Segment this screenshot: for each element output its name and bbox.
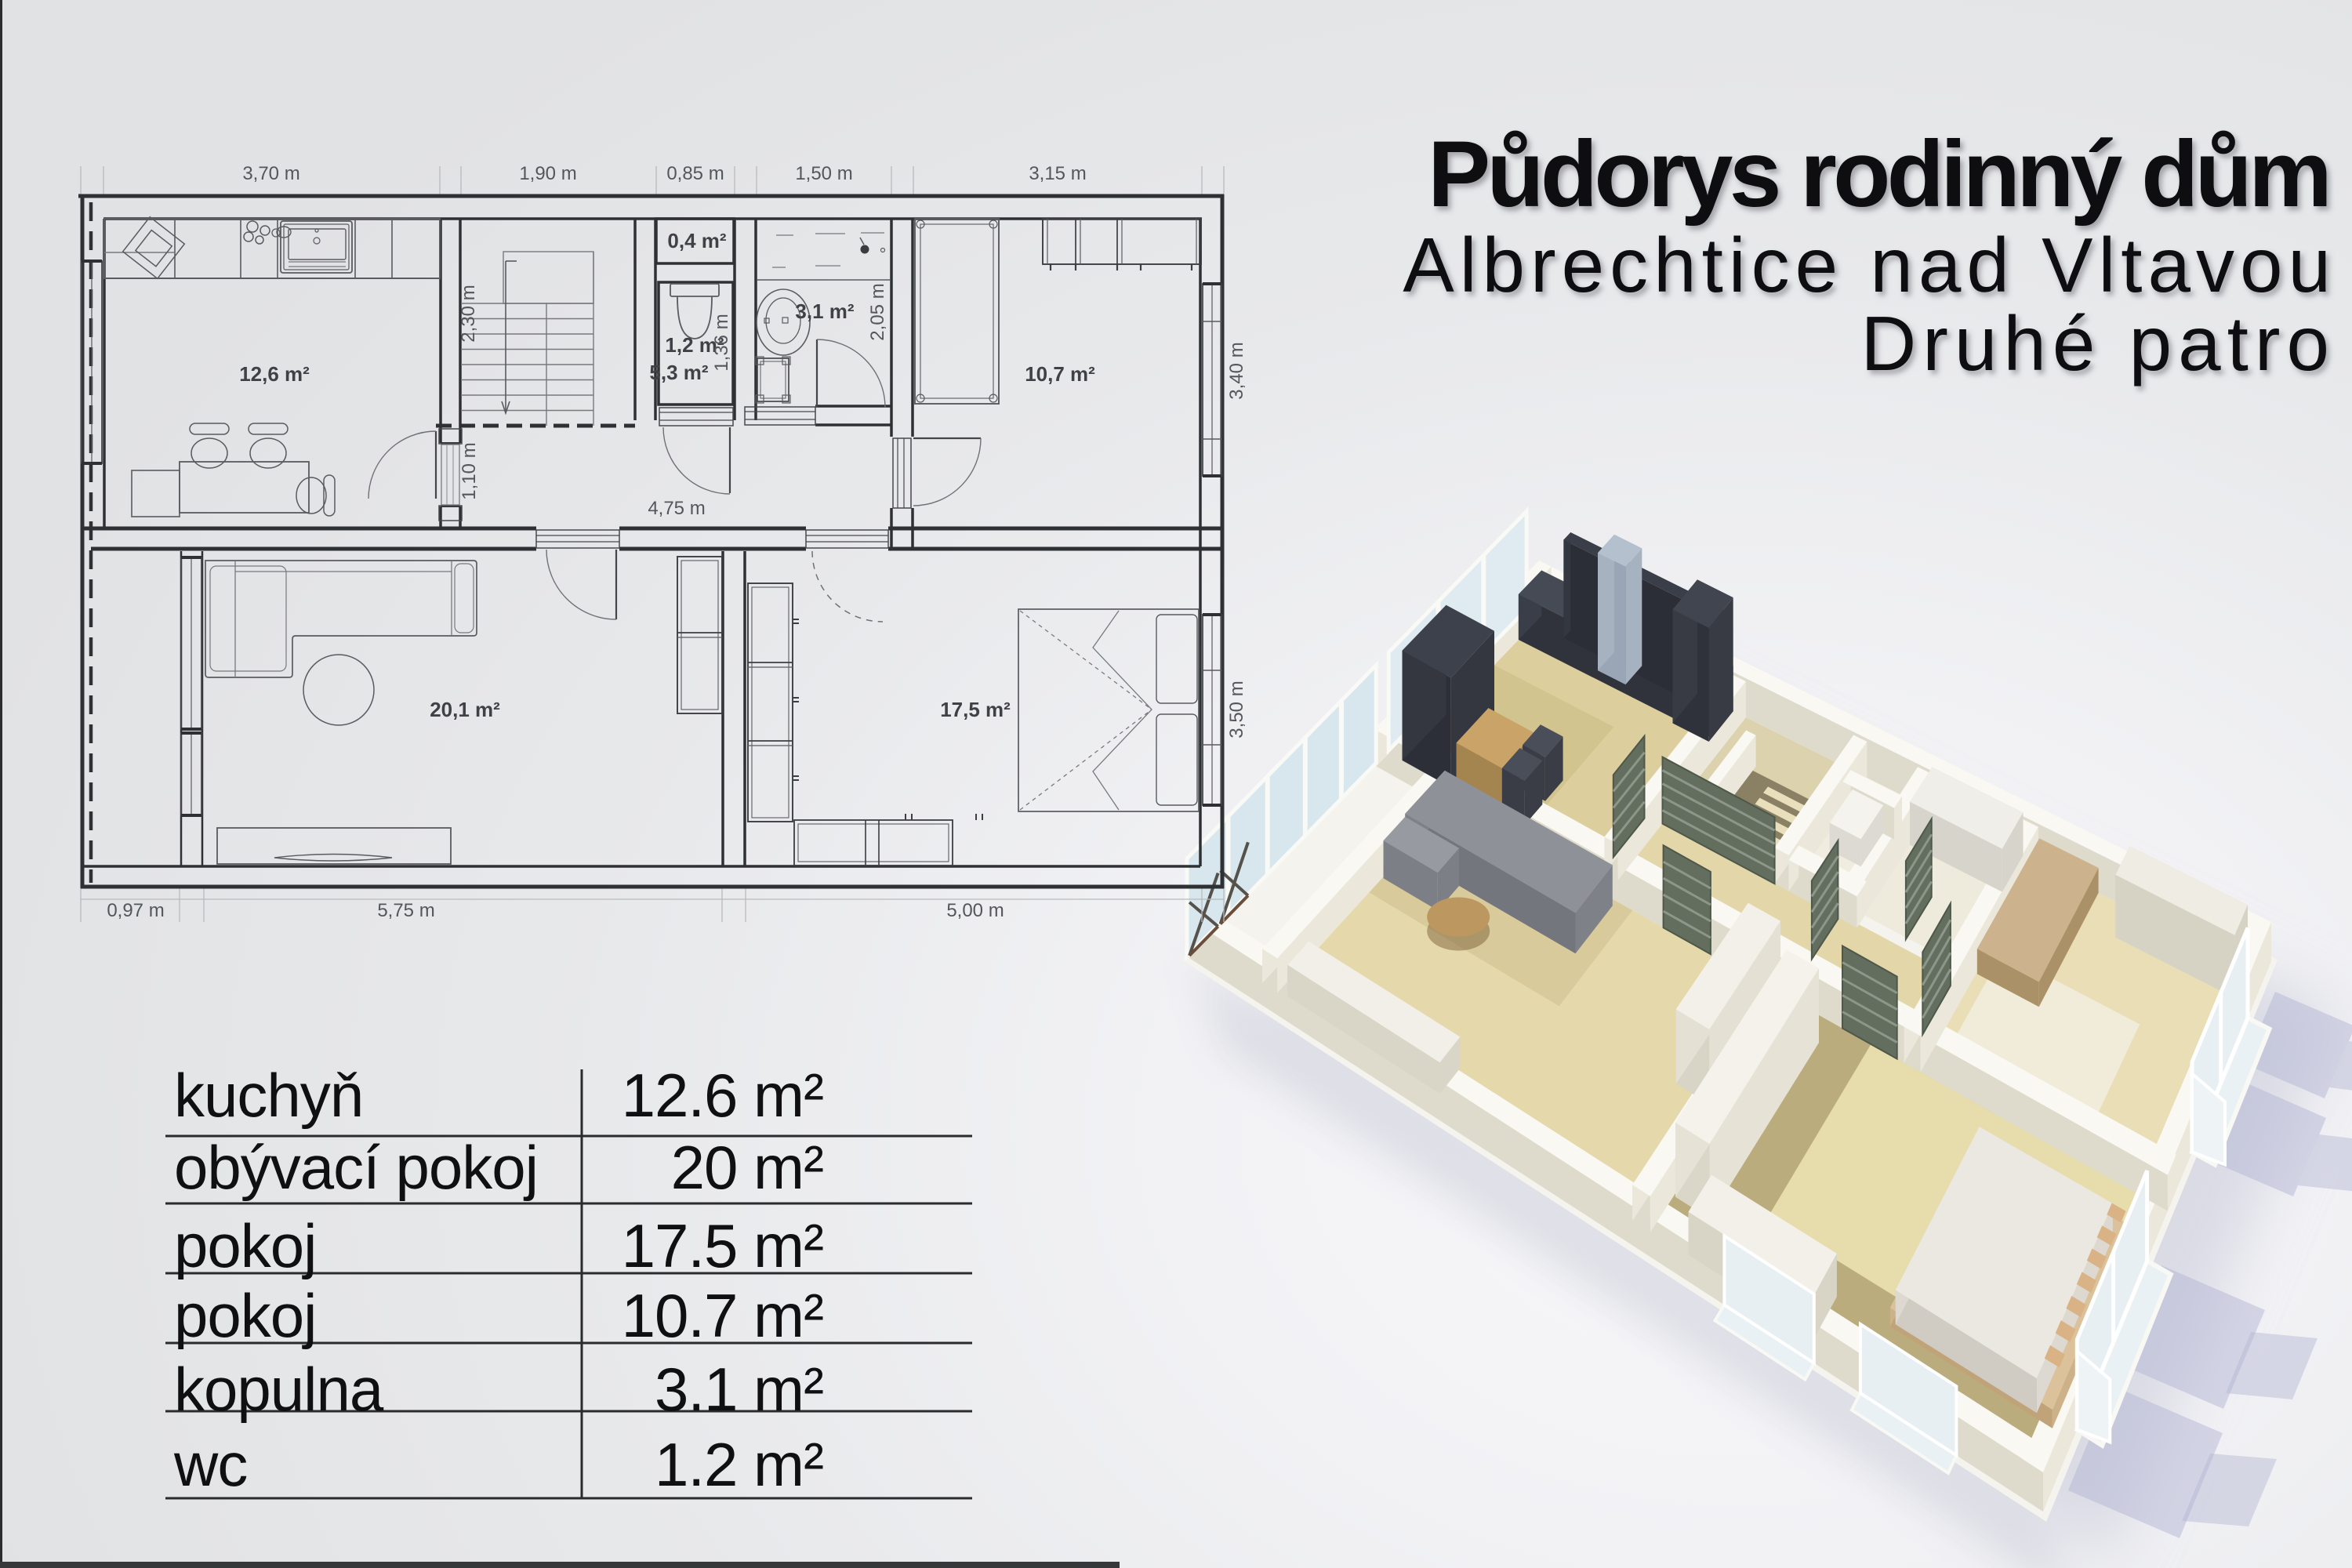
svg-text:3.1 m²: 3.1 m²: [655, 1355, 823, 1424]
svg-text:kuchyň: kuchyň: [174, 1061, 363, 1130]
svg-text:5,3 m²: 5,3 m²: [649, 361, 708, 384]
svg-text:obývací pokoj: obývací pokoj: [174, 1133, 538, 1202]
svg-text:20 m²: 20 m²: [671, 1133, 823, 1202]
svg-text:1,90 m: 1,90 m: [519, 163, 576, 184]
svg-text:4,75 m: 4,75 m: [648, 498, 705, 519]
svg-text:2,05 m: 2,05 m: [867, 283, 888, 340]
svg-text:17,5 m²: 17,5 m²: [940, 698, 1011, 721]
svg-text:2,30 m: 2,30 m: [458, 285, 479, 342]
svg-text:20,1 m²: 20,1 m²: [430, 698, 500, 721]
svg-text:0,4 m²: 0,4 m²: [667, 229, 726, 252]
svg-text:wc: wc: [173, 1430, 247, 1499]
svg-text:0,85 m: 0,85 m: [666, 163, 724, 184]
svg-text:1.2 m²: 1.2 m²: [655, 1430, 823, 1499]
svg-text:5,00 m: 5,00 m: [946, 900, 1004, 921]
svg-text:1,10 m: 1,10 m: [459, 442, 480, 499]
svg-text:3,70 m: 3,70 m: [242, 163, 299, 184]
svg-text:10.7 m²: 10.7 m²: [622, 1281, 823, 1350]
svg-text:5,75 m: 5,75 m: [377, 900, 434, 921]
svg-text:3,50 m: 3,50 m: [1226, 681, 1247, 738]
svg-text:0,97 m: 0,97 m: [107, 900, 164, 921]
svg-text:12.6 m²: 12.6 m²: [622, 1061, 823, 1130]
svg-text:pokoj: pokoj: [174, 1281, 316, 1350]
svg-text:1,50 m: 1,50 m: [795, 163, 852, 184]
svg-text:12,6 m²: 12,6 m²: [239, 362, 310, 386]
svg-text:3,1 m²: 3,1 m²: [795, 299, 854, 323]
svg-text:17.5 m²: 17.5 m²: [622, 1211, 823, 1280]
svg-text:kopulna: kopulna: [174, 1355, 384, 1424]
svg-text:3,15 m: 3,15 m: [1029, 163, 1086, 184]
svg-text:pokoj: pokoj: [174, 1211, 316, 1280]
svg-text:1,36 m: 1,36 m: [711, 314, 732, 371]
svg-text:3,40 m: 3,40 m: [1226, 342, 1247, 399]
svg-text:10,7 m²: 10,7 m²: [1025, 362, 1095, 386]
